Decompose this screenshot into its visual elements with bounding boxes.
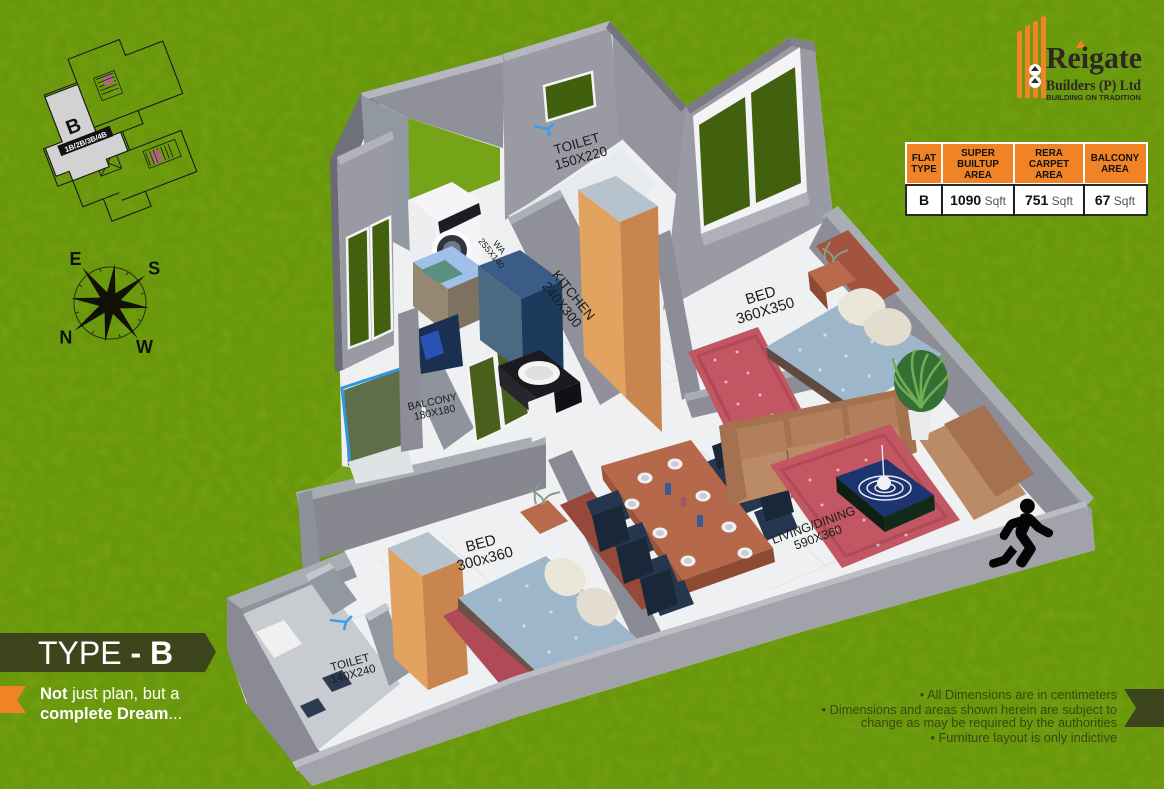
svg-text:S: S [148, 259, 160, 279]
svg-text:67 Sqft: 67 Sqft [1095, 192, 1136, 208]
svg-text:W: W [136, 337, 153, 357]
svg-text:Builders (P) Ltd: Builders (P) Ltd [1046, 78, 1141, 94]
svg-text:AREA: AREA [964, 170, 992, 181]
svg-text:TYPE - B: TYPE - B [38, 635, 173, 671]
svg-text:Not just plan, but a: Not just plan, but a [40, 685, 180, 703]
svg-text:change as may be required by t: change as may be required by the authori… [861, 715, 1117, 730]
svg-text:complete Dream...: complete Dream... [40, 705, 182, 723]
svg-text:E: E [70, 249, 82, 269]
svg-text:FLAT: FLAT [912, 153, 936, 164]
svg-text:Reigate: Reigate [1046, 40, 1142, 75]
svg-text:BUILTUP: BUILTUP [957, 159, 999, 170]
svg-text:RERA: RERA [1035, 148, 1063, 159]
svg-text:B: B [919, 192, 929, 208]
svg-text:N: N [59, 327, 72, 347]
svg-text:751 Sqft: 751 Sqft [1025, 192, 1074, 208]
svg-text:AREA: AREA [1101, 164, 1129, 175]
svg-text:• Furniture layout is only in: • Furniture layout is only indictive [930, 730, 1117, 745]
svg-text:SUPER: SUPER [961, 148, 995, 159]
svg-text:• All Dimensions are in centi: • All Dimensions are in centimeters [920, 687, 1117, 702]
svg-text:AREA: AREA [1035, 170, 1063, 181]
svg-text:TYPE: TYPE [911, 164, 937, 175]
svg-text:CARPET: CARPET [1029, 159, 1069, 170]
svg-text:BALCONY: BALCONY [1091, 153, 1140, 164]
svg-text:BUILDING ON TRADITION: BUILDING ON TRADITION [1046, 95, 1141, 102]
svg-text:1090 Sqft: 1090 Sqft [950, 192, 1007, 208]
